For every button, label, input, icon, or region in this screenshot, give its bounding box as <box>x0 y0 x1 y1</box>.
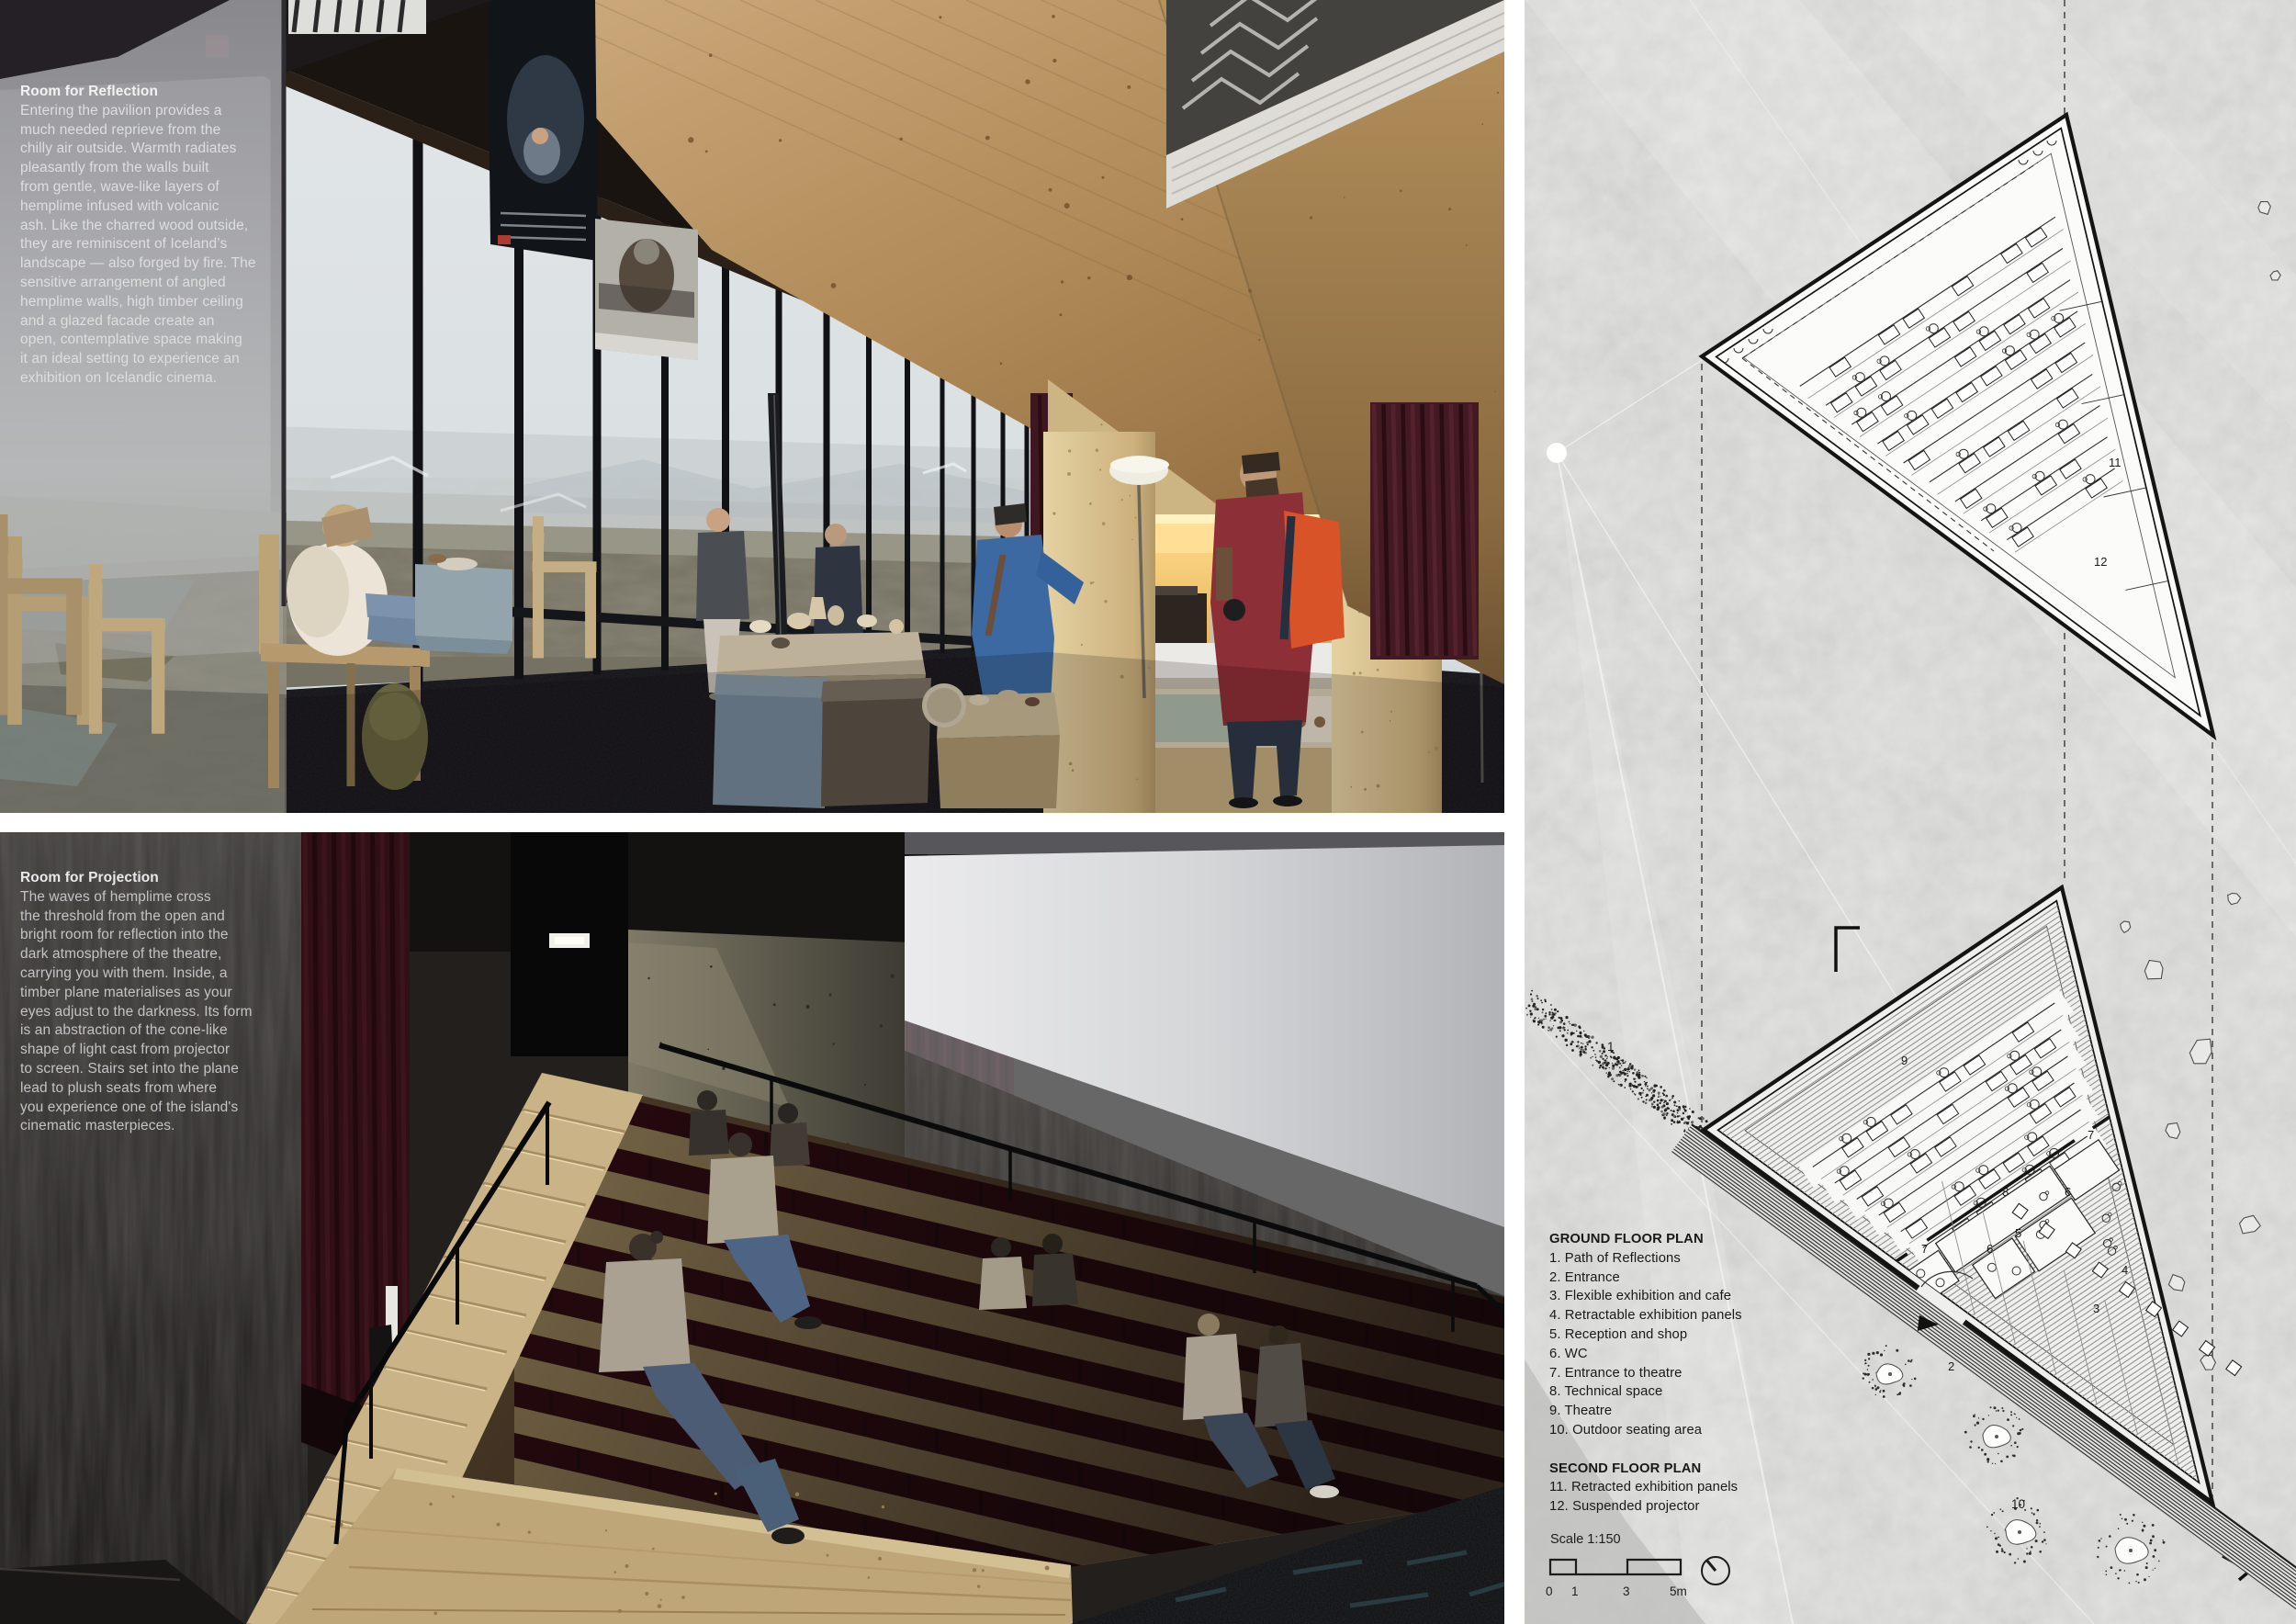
svg-text:7: 7 <box>2088 1128 2094 1142</box>
svg-text:4: 4 <box>2122 1263 2128 1277</box>
svg-text:1: 1 <box>1607 1040 1615 1054</box>
svg-text:1: 1 <box>1571 1585 1579 1598</box>
svg-text:9: 9 <box>1901 1054 1908 1067</box>
svg-text:Scale 1:150: Scale 1:150 <box>1550 1532 1621 1547</box>
svg-text:10: 10 <box>2011 1497 2025 1511</box>
svg-text:11: 11 <box>2109 456 2122 469</box>
svg-text:2: 2 <box>1948 1359 1954 1373</box>
svg-text:5: 5 <box>2015 1226 2021 1240</box>
svg-text:6: 6 <box>2065 1185 2071 1199</box>
svg-text:3: 3 <box>2093 1302 2099 1315</box>
svg-text:12: 12 <box>2094 555 2107 569</box>
svg-text:6: 6 <box>1986 1242 1993 1256</box>
svg-text:0: 0 <box>1546 1585 1553 1598</box>
svg-text:8: 8 <box>2002 1185 2009 1199</box>
svg-text:5m: 5m <box>1670 1585 1687 1598</box>
svg-text:3: 3 <box>1623 1585 1630 1598</box>
